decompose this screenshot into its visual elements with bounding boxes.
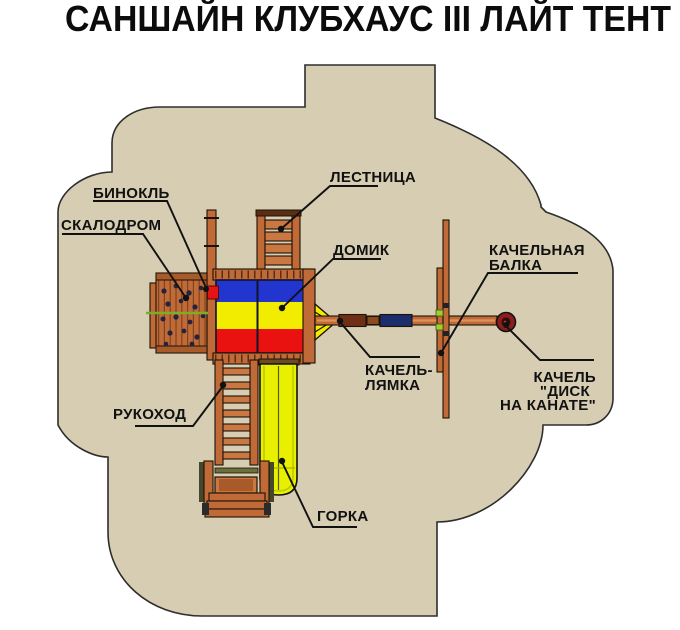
ladder-rung — [265, 232, 292, 241]
ladder-rung — [265, 244, 292, 253]
swing-support-long — [443, 220, 449, 418]
support-bolt — [443, 303, 449, 308]
leader-dot-binoculars — [203, 286, 209, 292]
support-bolt — [443, 331, 449, 336]
leader-dot-house — [279, 305, 285, 311]
label-ladder: ЛЕСТНИЦА — [330, 169, 416, 186]
support-marker — [436, 310, 443, 316]
ladder-rail-left — [257, 211, 265, 271]
binoculars-post — [207, 210, 216, 360]
beam-connector — [367, 317, 379, 325]
ladder-top-bar — [256, 210, 301, 216]
leader-dot-slide — [279, 458, 285, 464]
ladder-rail-right — [292, 211, 300, 271]
platform-deck-inner — [219, 479, 253, 491]
monkey-rung — [223, 410, 250, 417]
swing-support-short — [437, 268, 443, 372]
binoculars-toy — [208, 286, 219, 299]
ladder-rung — [265, 256, 292, 265]
monkey-rung — [223, 452, 250, 459]
leader-dot-strap-swing — [337, 318, 343, 324]
label-slide: ГОРКА — [317, 508, 368, 525]
page-title: САНШАЙН КЛУБХАУС III ЛАЙТ ТЕНТ — [65, 0, 671, 39]
wall-bottom-rail — [156, 346, 207, 353]
label-binoculars: БИНОКЛЬ — [93, 185, 170, 202]
strap-swing-seat — [380, 315, 412, 327]
monkey-rung — [223, 368, 250, 375]
step-platform — [199, 461, 274, 517]
monkey-rung — [223, 382, 250, 389]
support-marker — [436, 324, 443, 330]
leader-dot-disc-swing — [503, 322, 509, 328]
leader-dot-swing-beam — [438, 350, 444, 356]
monkey-rail-left — [215, 360, 223, 465]
label-swing-beam-line2: БАЛКА — [489, 257, 542, 274]
label-disc-swing-line3: НА КАНАТЕ" — [500, 397, 596, 414]
tent-stripe-yellow — [216, 302, 305, 329]
label-climbing-wall: СКАЛОДРОМ — [61, 217, 161, 234]
diagram-canvas: САНШАЙН КЛУБХАУС III ЛАЙТ ТЕНТ — [0, 0, 680, 630]
step — [205, 509, 269, 517]
label-strap-swing-line2: ЛЯМКА — [365, 377, 420, 394]
leader-dot-climbing-wall — [183, 295, 189, 301]
monkey-rung — [223, 396, 250, 403]
monkey-rail-right — [250, 360, 258, 465]
leader-dot-monkey-bars — [220, 382, 226, 388]
step-foot-left — [202, 503, 209, 515]
monkey-rung — [223, 424, 250, 431]
monkey-rung — [223, 438, 250, 445]
leader-dot-ladder — [278, 226, 284, 232]
label-house: ДОМИК — [333, 242, 390, 259]
label-monkey-bars: РУКОХОД — [113, 406, 186, 423]
platform-brace — [215, 468, 258, 473]
playground-diagram: САНШАЙН КЛУБХАУС III ЛАЙТ ТЕНТ — [0, 0, 680, 630]
tent-stripe-red — [216, 329, 305, 353]
step — [207, 501, 267, 509]
step-foot-right — [264, 503, 271, 515]
step — [209, 493, 265, 501]
